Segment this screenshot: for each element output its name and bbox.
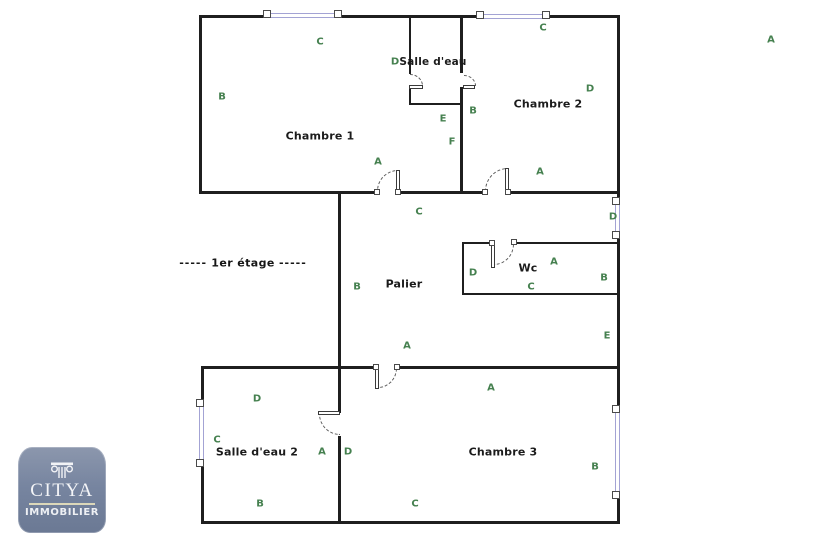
- wall-salledeau-bottom: [409, 103, 462, 105]
- door-jamb: [489, 240, 495, 246]
- door-jamb: [505, 189, 511, 195]
- door-leaf-salledeau2: [318, 411, 340, 415]
- dimension-marker-salle-deau: D: [391, 57, 399, 68]
- dimension-marker-wc: C: [527, 282, 534, 293]
- door-leaf-chambre1: [396, 170, 400, 191]
- door-jamb: [374, 189, 380, 195]
- room-label-chambre2: Chambre 2: [514, 98, 583, 111]
- room-label-chambre1: Chambre 1: [286, 130, 355, 143]
- window-symbol-chambre1-top: [266, 13, 339, 18]
- wall-lower-divider-seg1: [338, 366, 341, 413]
- door-arc-chambre1: [377, 170, 398, 191]
- dimension-marker-page-top-right: A: [767, 35, 775, 46]
- wall-upper-left-exterior: [199, 15, 202, 194]
- logo-tagline-text: IMMOBILIER: [25, 508, 99, 518]
- dimension-marker-palier-top: C: [415, 207, 422, 218]
- dimension-marker-palier-bottom: A: [403, 341, 411, 352]
- floor-note-text: 1er étage: [211, 257, 274, 270]
- window-symbol-chambre3-right: [615, 408, 620, 496]
- wall-mid-lower-seg1: [201, 366, 376, 369]
- column-capital-icon: [45, 462, 79, 479]
- window-endcap-icon: [612, 231, 620, 239]
- window-endcap-icon: [196, 459, 204, 467]
- window-endcap-icon: [334, 10, 342, 18]
- door-leaf-palier: [375, 368, 379, 389]
- room-label-salledeau: Salle d'eau: [399, 56, 466, 68]
- wall-wc-left: [462, 242, 464, 295]
- window-symbol-salledeau2-left: [199, 402, 204, 464]
- dimension-marker-wc: A: [550, 257, 558, 268]
- wall-palier-left: [338, 191, 341, 369]
- dimension-marker-chambre1-top: C: [316, 37, 323, 48]
- wall-wc-top-seg1: [462, 242, 492, 244]
- dimension-marker-chambre2-top: C: [539, 23, 546, 34]
- door-leaf-wc: [491, 244, 495, 268]
- wall-chambres-divider-seg2: [460, 87, 463, 194]
- dimension-marker-salle-deau-below: F: [449, 137, 456, 148]
- door-arc-palier: [378, 368, 397, 388]
- room-label-palier: Palier: [386, 278, 423, 291]
- floor-note-dash-right: -----: [279, 257, 307, 270]
- window-endcap-icon: [196, 399, 204, 407]
- wall-lower-divider-seg2: [338, 436, 341, 524]
- dimension-marker-salle-deau2-bottom: B: [256, 499, 264, 510]
- dimension-marker-chambre1-door: A: [374, 157, 382, 168]
- door-jamb: [482, 189, 488, 195]
- door-leaf-chambre2: [505, 168, 509, 191]
- door-jamb: [395, 189, 401, 195]
- floor-note-dash-left: -----: [179, 257, 207, 270]
- wall-bottom-exterior: [201, 521, 620, 524]
- door-leaf-salledeau-left: [409, 85, 423, 89]
- window-endcap-icon: [612, 405, 620, 413]
- door-jamb: [511, 239, 517, 245]
- wall-mid-upper-seg2: [398, 191, 485, 194]
- door-arc-wc: [494, 244, 514, 265]
- window-endcap-icon: [476, 11, 484, 19]
- window-symbol-chambre2-top: [479, 14, 547, 19]
- dimension-marker-chambre2-door: A: [536, 167, 544, 178]
- dimension-marker-chambre3-right: B: [591, 462, 599, 473]
- dimension-marker-salle-deau2-top: D: [253, 394, 261, 405]
- floor-note: ----- 1er étage -----: [179, 257, 307, 270]
- door-jamb: [373, 364, 379, 370]
- wall-mid-upper-seg3: [508, 191, 620, 194]
- dimension-marker-wc-left: D: [469, 268, 477, 279]
- window-endcap-icon: [612, 491, 620, 499]
- dimension-marker-salle-deau2-door: A: [318, 447, 326, 458]
- dimension-marker-chambre1-left: B: [218, 92, 226, 103]
- dimension-marker-chambre3-bottom: C: [411, 499, 418, 510]
- door-jamb: [394, 364, 400, 370]
- wall-mid-upper-seg1: [199, 191, 377, 194]
- window-endcap-icon: [612, 197, 620, 205]
- door-leaf-salledeau-right: [463, 85, 475, 89]
- dimension-marker-chambre2-left: B: [469, 106, 477, 117]
- wall-wc-bottom: [462, 293, 620, 295]
- window-endcap-icon: [263, 10, 271, 18]
- door-arc-salledeau2: [319, 414, 340, 435]
- dimension-marker-palier-right: E: [604, 331, 611, 342]
- citya-logo-badge: CITYA IMMOBILIER: [18, 447, 106, 533]
- room-label-salledeau2: Salle d'eau 2: [216, 446, 298, 459]
- dimension-marker-chambre3-left: D: [344, 447, 352, 458]
- dimension-marker-chambre3-top: A: [487, 383, 495, 394]
- logo-divider: [29, 503, 95, 505]
- room-label-wc: Wc: [518, 262, 537, 275]
- wall-wc-top-seg2: [514, 242, 620, 244]
- logo-brand-text: CITYA: [30, 481, 93, 500]
- dimension-marker-salle-deau2-left: C: [213, 435, 220, 446]
- dimension-marker-wc-right: B: [600, 273, 608, 284]
- dimension-marker-chambre2: D: [586, 84, 594, 95]
- dimension-marker-right-window: D: [609, 212, 617, 223]
- dimension-marker-salle-deau-below: E: [440, 114, 447, 125]
- wall-mid-lower-seg2: [397, 366, 620, 369]
- floorplan-canvas: Chambre 1 Salle d'eau Chambre 2 Palier W…: [0, 0, 820, 542]
- room-label-chambre3: Chambre 3: [469, 446, 538, 459]
- dimension-marker-palier-left: B: [353, 282, 361, 293]
- window-endcap-icon: [542, 11, 550, 19]
